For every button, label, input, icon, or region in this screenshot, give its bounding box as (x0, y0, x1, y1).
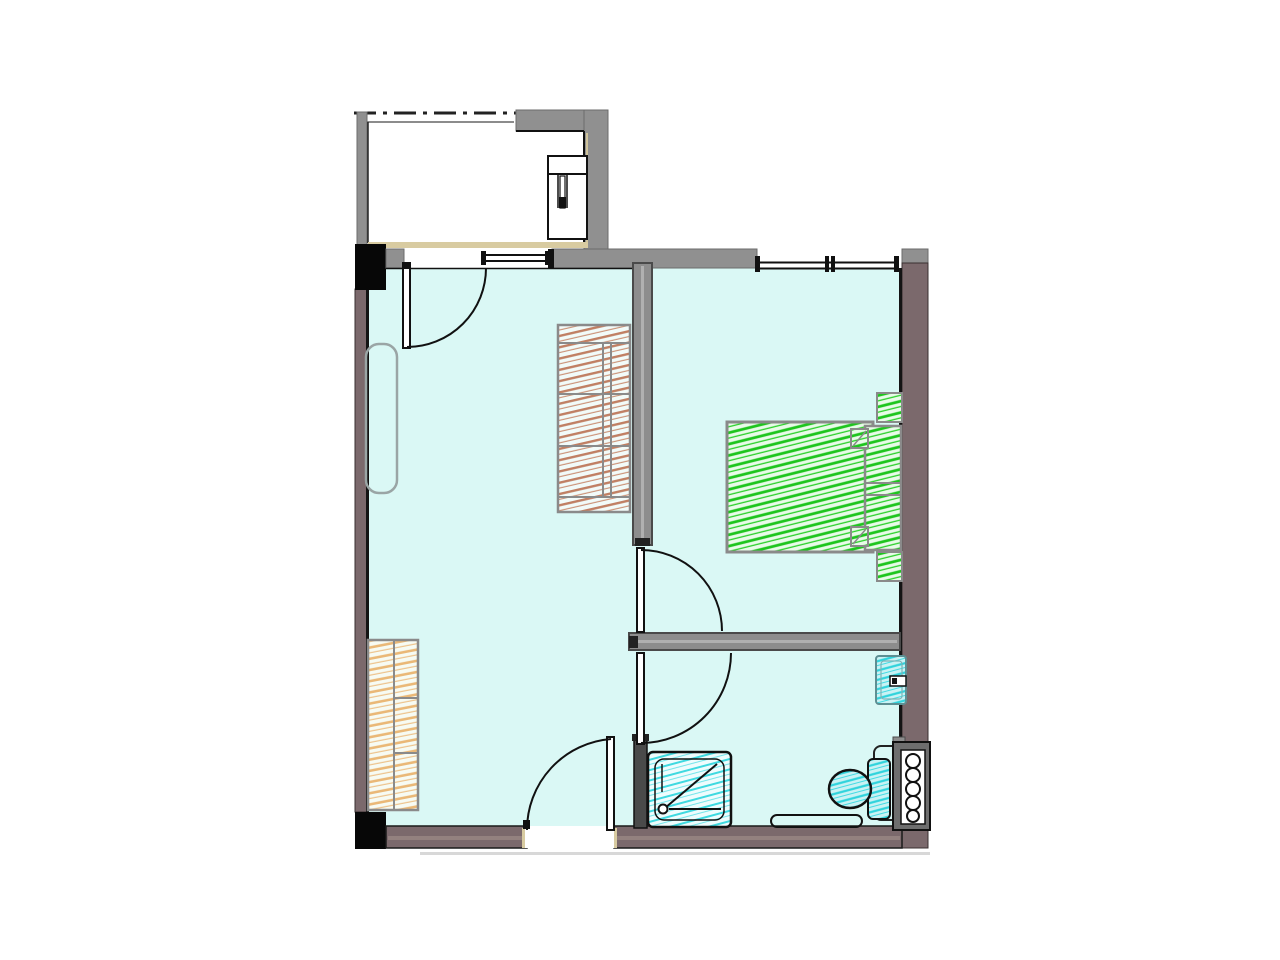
drop-shadow-line (420, 852, 930, 855)
balcony-left-wall (357, 112, 367, 245)
door-opening (525, 826, 614, 848)
door-leaf (403, 268, 410, 348)
wall-right-stub (902, 249, 928, 263)
entry-bathroom-stub-wall (634, 737, 647, 828)
column-top-left (355, 244, 386, 290)
shower-drain (659, 805, 668, 814)
door-leaf (637, 548, 644, 632)
plumbing-shaft (893, 742, 930, 830)
nightstand-top (877, 393, 902, 422)
balcony-threshold-sill (368, 242, 588, 248)
living-room-window (481, 251, 550, 265)
wall-north-living-bedroom (552, 249, 757, 268)
wash-basin (876, 656, 906, 704)
tall-wardrobe (558, 325, 630, 512)
column-bottom-left (355, 812, 386, 849)
door-frame-block (629, 636, 638, 648)
double-bed (727, 422, 901, 552)
pipe-section (906, 782, 920, 796)
nightstand-bottom (877, 552, 902, 581)
floor-plan-drawing (0, 0, 1280, 960)
door-frame-block (635, 538, 650, 546)
pipe-section (907, 810, 919, 822)
shower-tray (648, 752, 731, 827)
toilet-bowl (829, 770, 871, 808)
pipe-section (906, 754, 920, 768)
floor-plan-canvas (0, 0, 1280, 960)
door-leaf (637, 653, 644, 744)
pipe-section (906, 768, 920, 782)
entry-wardrobe (368, 640, 418, 810)
door-leaf (607, 737, 614, 830)
wall-north-stub (386, 249, 404, 268)
balcony (354, 110, 608, 249)
headboard (865, 426, 901, 550)
water-heater-unit (548, 156, 587, 239)
pipe-section (906, 796, 920, 810)
